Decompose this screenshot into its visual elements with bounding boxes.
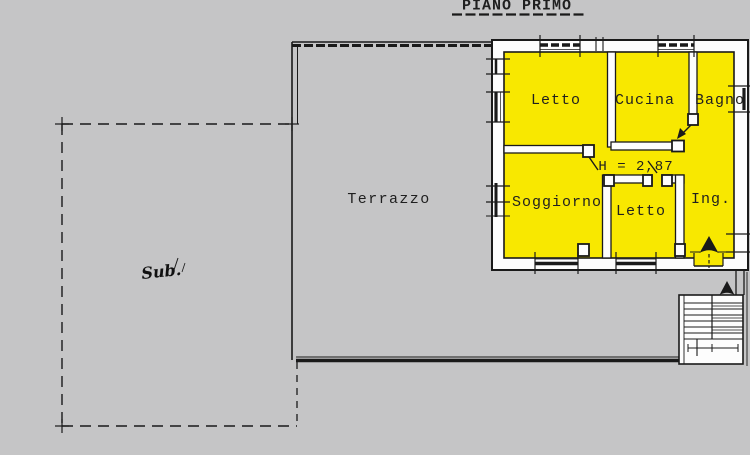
room-label-cucina: Cucina	[615, 92, 675, 109]
room-label-bagno: Bagno	[695, 92, 745, 109]
sub-label-group: Sub.	[140, 258, 185, 283]
room-label-ingresso: Ing.	[691, 191, 731, 208]
page-title: PIANO PRIMO	[462, 0, 572, 15]
ceiling-height-note: H = 2,87	[598, 159, 673, 175]
room-label-letto-2: Letto	[616, 203, 666, 220]
staircase	[679, 270, 747, 366]
drawing-title: PIANO PRIMO	[452, 0, 584, 15]
stair-arrow-icon	[720, 281, 735, 295]
apartment	[486, 35, 750, 274]
terrace-label: Terrazzo	[347, 191, 430, 208]
floor-plan-canvas: PIANO PRIMO	[0, 0, 750, 455]
apartment-floor-area	[504, 52, 734, 258]
room-label-letto-1: Letto	[531, 92, 581, 109]
room-label-soggiorno: Soggiorno	[512, 194, 602, 211]
floor-plan-page: PIANO PRIMO	[0, 0, 750, 455]
